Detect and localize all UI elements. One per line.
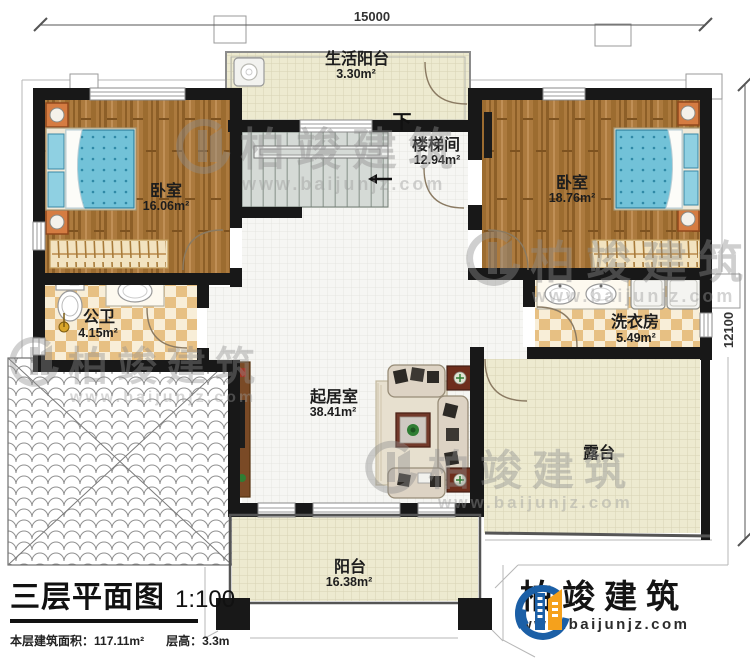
room-label-balcony: 阳台 [334, 557, 366, 576]
window [543, 88, 585, 100]
room-label-bedroom-left: 卧室 [150, 181, 182, 200]
watermark-website: www.baijunjz.com [437, 493, 633, 512]
floor-area-label: 本层建筑面积： [10, 634, 94, 648]
watermark-company: 柏竣建筑 [68, 345, 264, 389]
room-area-laundry: 5.49m² [616, 331, 656, 345]
room-label-bedroom-right: 卧室 [556, 173, 588, 192]
room-area-bathroom: 4.15m² [78, 326, 118, 340]
room-area-bedroom-left: 16.06m² [143, 199, 190, 213]
watermark-company: 柏竣建筑 [530, 237, 750, 288]
dimension-width-label: 15000 [354, 9, 390, 24]
watermark-company: 柏竣建筑 [428, 447, 636, 494]
balcony-washing-machine [234, 58, 264, 86]
room-label-bathroom: 公卫 [83, 308, 115, 326]
room-label-service-balcony: 生活阳台 [325, 49, 389, 68]
window [90, 88, 185, 100]
company-logo: 柏竣建筑 www.baijunjz.com [512, 580, 689, 633]
company-logo-icon [512, 580, 574, 646]
room-area-bedroom-right: 18.76m² [549, 191, 596, 205]
title-block: 三层平面图1:100 本层建筑面积：117.11m²层高：3.3m [10, 572, 260, 649]
title-underline [10, 619, 198, 623]
floor-area-value: 117.11m² [94, 634, 144, 648]
watermark-website: www.baijunjz.com [531, 286, 735, 306]
dimension-height-label: 12100 [721, 312, 736, 348]
tv-bedroom-right [484, 112, 492, 158]
floor-height-label: 层高： [166, 634, 202, 648]
floor-plan-page: 15000 12100 [0, 0, 750, 658]
plan-notes: 本层建筑面积：117.11m²层高：3.3m [10, 632, 260, 649]
room-area-balcony: 16.38m² [326, 575, 373, 589]
window [33, 222, 45, 250]
watermark-website: www.baijunjz.com [69, 389, 256, 406]
room-area-service-balcony: 3.30m² [336, 67, 376, 81]
floor-height-value: 3.3m [202, 634, 229, 648]
window [700, 313, 712, 337]
room-label-laundry: 洗衣房 [611, 312, 659, 331]
plan-scale: 1:100 [175, 586, 235, 613]
watermark-website: www.baijunjz.com [241, 174, 445, 194]
room-label-living: 起居室 [309, 387, 358, 406]
floor-plan-drawing: 15000 12100 [0, 0, 750, 658]
pillar [458, 598, 492, 630]
room-area-living: 38.41m² [310, 405, 357, 419]
plan-title: 三层平面图 [10, 581, 165, 614]
watermark-company: 柏竣建筑 [240, 124, 464, 175]
closet-left [50, 240, 168, 268]
